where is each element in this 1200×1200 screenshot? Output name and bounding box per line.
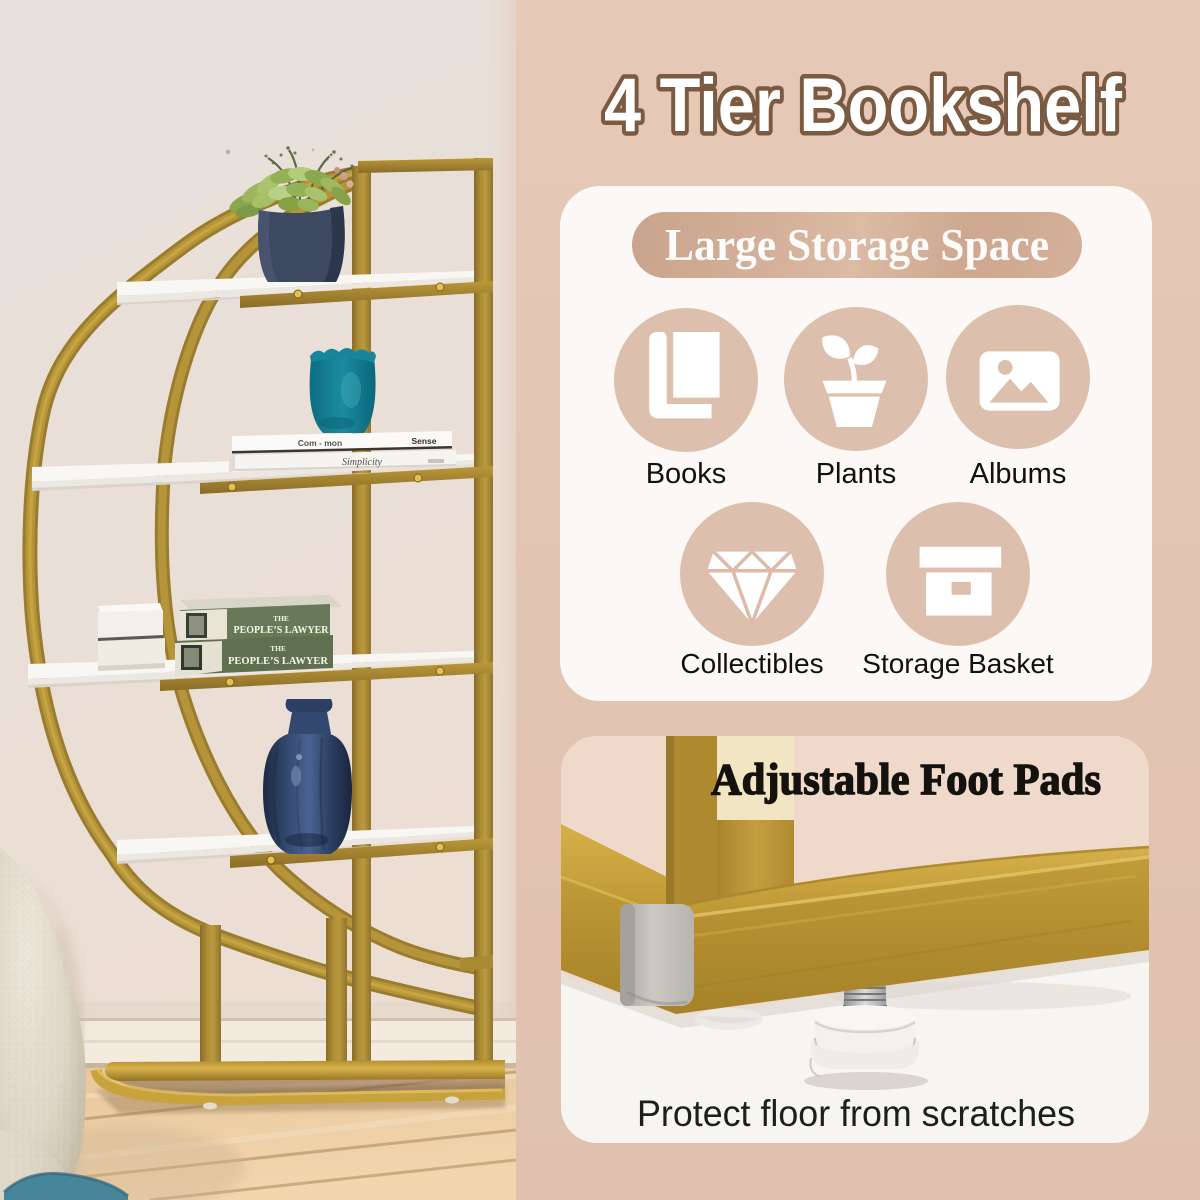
svg-text:Large Storage Space: Large Storage Space (665, 219, 1049, 270)
svg-text:Protect floor from scratches: Protect floor from scratches (637, 1093, 1075, 1134)
svg-text:4 Tier Bookshelf: 4 Tier Bookshelf (604, 63, 1123, 148)
svg-text:THE: THE (270, 644, 286, 653)
svg-text:PEOPLE’S LAWYER: PEOPLE’S LAWYER (234, 624, 330, 636)
svg-text:PEOPLE’S LAWYER: PEOPLE’S LAWYER (228, 655, 329, 667)
svg-text:Com - mon: Com - mon (298, 438, 342, 448)
svg-text:Sense: Sense (411, 436, 436, 446)
svg-text:THE: THE (273, 614, 289, 623)
svg-text:Adjustable Foot Pads: Adjustable Foot Pads (711, 755, 1101, 804)
svg-text:Simplicity: Simplicity (342, 457, 383, 468)
